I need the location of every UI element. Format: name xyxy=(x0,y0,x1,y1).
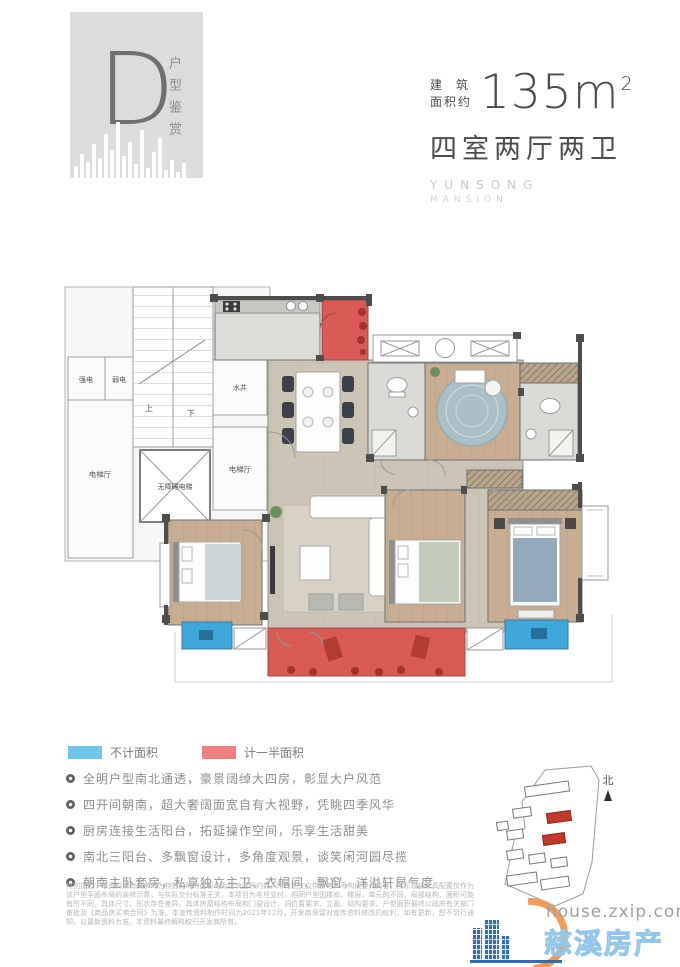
balcony-red-south-half-area xyxy=(268,628,465,676)
feature-bullet-icon xyxy=(66,826,75,835)
legend-item-half-area: 计一半面积 xyxy=(202,744,304,761)
dining-set xyxy=(282,372,354,452)
page: D 户型鉴赏 建 筑 面积约 135m2 四室两厅两卫 YUNSONG MANS… xyxy=(0,0,680,967)
kitchen xyxy=(215,300,320,360)
label-strong-power: 强电 xyxy=(79,375,93,384)
feature-text: 全明户型南北通透，豪景阔绰大四房，彰显大户风范 xyxy=(83,770,382,787)
north-label: 北 xyxy=(603,774,614,787)
north-balcony-half-area xyxy=(320,300,368,360)
bedroom-southwest xyxy=(160,520,262,625)
elevator-hall-left xyxy=(68,400,133,558)
equipment-platform xyxy=(373,335,517,362)
label-water-shaft: 水井 xyxy=(233,383,247,392)
plant xyxy=(270,506,282,518)
ottoman xyxy=(309,594,333,610)
master-bedroom xyxy=(467,470,608,622)
legend: 不计面积 计一半面积 xyxy=(68,744,348,761)
legend-swatch-blue xyxy=(68,746,102,759)
toilet xyxy=(387,378,407,393)
legend-swatch-red xyxy=(202,746,236,759)
feature-item: 全明户型南北通透，豪景阔绰大四房，彰显大户风范 xyxy=(66,770,426,787)
watermark-domain[interactable]: house.zxip.com xyxy=(546,902,680,922)
bench xyxy=(518,610,554,618)
floor-plan-svg: 强电 弱电 水井 上 下 电梯厅 电梯厅 无障碍电梯 xyxy=(63,284,623,696)
area-label-top: 建 筑 xyxy=(430,77,470,94)
feature-list: 全明户型南北通透，豪景阔绰大四房，彰显大户风范 四开间朝南，超大奢阔面宽自有大视… xyxy=(66,770,426,900)
header: 建 筑 面积约 135m2 四室两厅两卫 YUNSONG MANSION xyxy=(430,62,640,205)
unit-type-badge: D 户型鉴赏 xyxy=(70,12,203,178)
coffee-table xyxy=(300,546,330,580)
desk xyxy=(455,370,485,383)
bay-window xyxy=(160,543,170,607)
toilet xyxy=(540,399,560,414)
area-labels: 建 筑 面积约 xyxy=(430,77,470,115)
plant xyxy=(430,367,440,377)
bedroom-south xyxy=(385,490,465,622)
area-row: 建 筑 面积约 135m2 xyxy=(430,62,640,115)
watermark: house.zxip.com 慈溪房产网 xyxy=(468,896,680,967)
closet-corridor xyxy=(467,470,522,488)
legend-label-no-area: 不计面积 xyxy=(110,744,158,761)
area-value: 135m2 xyxy=(480,62,634,115)
sink xyxy=(287,302,296,311)
feature-bullet-icon xyxy=(66,852,75,861)
label-accessible-elevator: 无障碍电梯 xyxy=(158,482,193,491)
basin xyxy=(408,407,418,417)
ac-platform-2 xyxy=(467,628,503,650)
tv xyxy=(270,546,275,594)
label-elevator-hall-left: 电梯厅 xyxy=(89,469,112,479)
label-stairs-up: 上 xyxy=(145,404,153,413)
label-elevator-hall-right: 电梯厅 xyxy=(229,464,252,474)
feature-bullet-icon xyxy=(66,800,75,809)
rooms-summary: 四室两厅两卫 xyxy=(430,127,640,166)
floor-plan: 强电 弱电 水井 上 下 电梯厅 电梯厅 无障碍电梯 xyxy=(63,284,623,696)
study-bedroom xyxy=(425,363,521,460)
label-weak-power: 弱电 xyxy=(112,375,126,384)
disclaimer-text: 特别提示：本资料所有文字均为特别说明的面积均为建筑面积约数，所有图文仅供参考，不… xyxy=(66,882,474,927)
legend-item-no-area: 不计面积 xyxy=(68,744,158,761)
brand-line1: YUNSONG xyxy=(430,178,640,192)
legend-label-half-area: 计一半面积 xyxy=(244,744,304,761)
feature-text: 厨房连接生活阳台，拓延操作空间，乐享生活甜美 xyxy=(83,822,369,839)
watermark-site-name[interactable]: 慈溪房产网 xyxy=(544,922,680,967)
wardrobe xyxy=(520,363,578,383)
stove xyxy=(223,301,240,312)
logo-buildings-icon xyxy=(472,920,510,960)
armchair xyxy=(485,380,501,396)
feature-text: 南北三阳台、多飘窗设计，多角度观景，谈笑闲河园尽揽 xyxy=(83,848,408,865)
feature-item: 南北三阳台、多飘窗设计，多角度观景，谈笑闲河园尽揽 xyxy=(66,848,426,865)
balcony-blue-left-no-area xyxy=(182,622,232,649)
feature-text: 四开间朝南，超大奢阔面宽自有大视野，凭眺四季风华 xyxy=(83,796,395,813)
north-indicator: 北 xyxy=(598,772,618,801)
skyline-graphic xyxy=(70,118,203,178)
bay-window xyxy=(582,506,608,580)
ac-platform-1 xyxy=(234,628,266,649)
label-stairs-down: 下 xyxy=(187,409,195,418)
area-exponent: 2 xyxy=(621,73,634,95)
area-label-bottom: 面积约 xyxy=(430,94,470,111)
bathroom-1 xyxy=(368,363,425,460)
north-arrow-icon xyxy=(604,790,612,801)
feature-item: 四开间朝南，超大奢阔面宽自有大视野，凭眺四季风华 xyxy=(66,796,426,813)
bathroom-2 xyxy=(520,363,578,460)
feature-item: 厨房连接生活阳台，拓延操作空间，乐享生活甜美 xyxy=(66,822,426,839)
sofa xyxy=(310,496,395,518)
brand-line2: MANSION xyxy=(430,195,640,205)
brand: YUNSONG MANSION xyxy=(430,178,640,205)
feature-bullet-icon xyxy=(66,774,75,783)
balcony-blue-right-no-area xyxy=(505,620,568,649)
